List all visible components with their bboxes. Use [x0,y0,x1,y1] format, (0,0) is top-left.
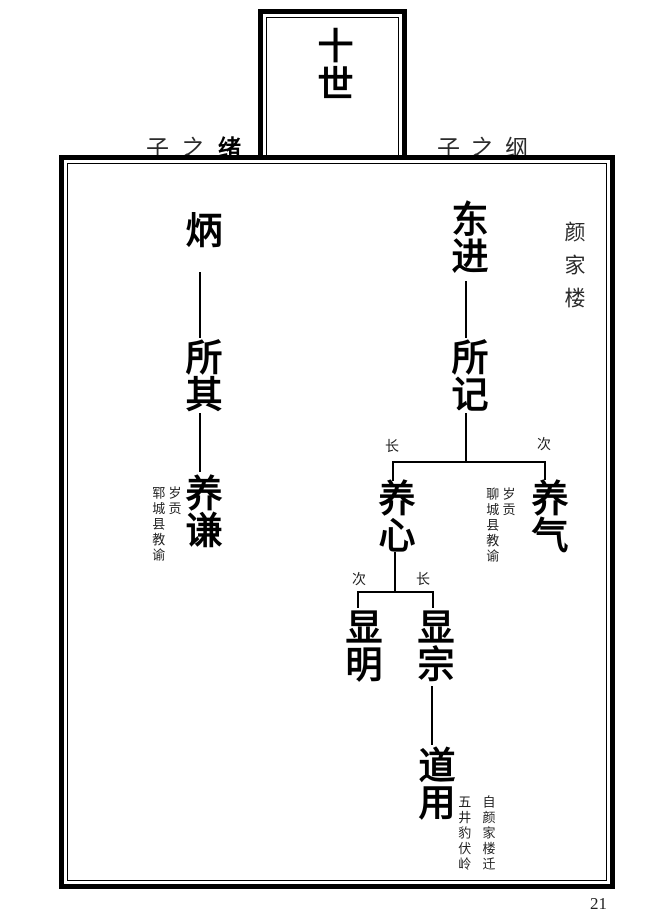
annotation-col: 自颜家楼迁 [479,795,495,873]
annotation-col: 岁贡 [165,486,181,564]
connector-line [357,591,359,608]
connector-line [465,413,467,462]
name-node-yangqi: 养气 [527,479,564,553]
name-node-dongjin: 东进 [447,200,484,274]
connector-line [357,591,434,593]
annotation-col: 五井豹伏岭 [455,795,471,873]
genealogy-page: 十世 子之绪 子之纲 颜家楼 炳 所其 养谦 岁贡 郓城县教谕 东进 所记 长 … [0,0,671,916]
name-node-suoqi: 所其 [181,338,218,412]
name-node-xianming: 显明 [341,608,378,682]
name-node-yangxin: 养心 [374,479,411,553]
annotation-yangqian: 岁贡 郓城县教谕 [149,486,182,564]
connector-line [199,413,201,472]
birth-order-label: 长 [416,574,430,588]
birth-order-label: 次 [352,574,366,588]
connector-line [199,272,201,338]
connector-line [544,461,546,480]
name-node-yangqian: 养谦 [181,474,218,548]
annotation-yangqi: 岁贡 聊城县教谕 [483,487,516,565]
annotation-col: 郓城县教谕 [149,486,165,564]
connector-line [394,552,396,593]
annotation-col: 聊城县教谕 [483,487,499,565]
generation-title: 十世 [315,27,351,103]
name-node-bing: 炳 [181,211,218,248]
connector-line [392,461,546,463]
annotation-col: 岁贡 [499,487,515,565]
name-node-xianzong: 显宗 [413,608,450,682]
birth-order-label: 次 [537,439,551,453]
annotation-daoyong: 自颜家楼迁 五井豹伏岭 [455,795,496,873]
location-label: 颜家楼 [563,221,584,320]
name-node-daoyong: 道用 [414,746,451,820]
generation-title-box: 十世 [258,9,407,155]
page-number: 21 [590,894,607,914]
birth-order-label: 长 [385,441,399,455]
connector-line [431,686,433,745]
connector-line [465,281,467,338]
connector-line [432,591,434,608]
connector-line [392,461,394,481]
name-node-suoji: 所记 [447,338,484,412]
